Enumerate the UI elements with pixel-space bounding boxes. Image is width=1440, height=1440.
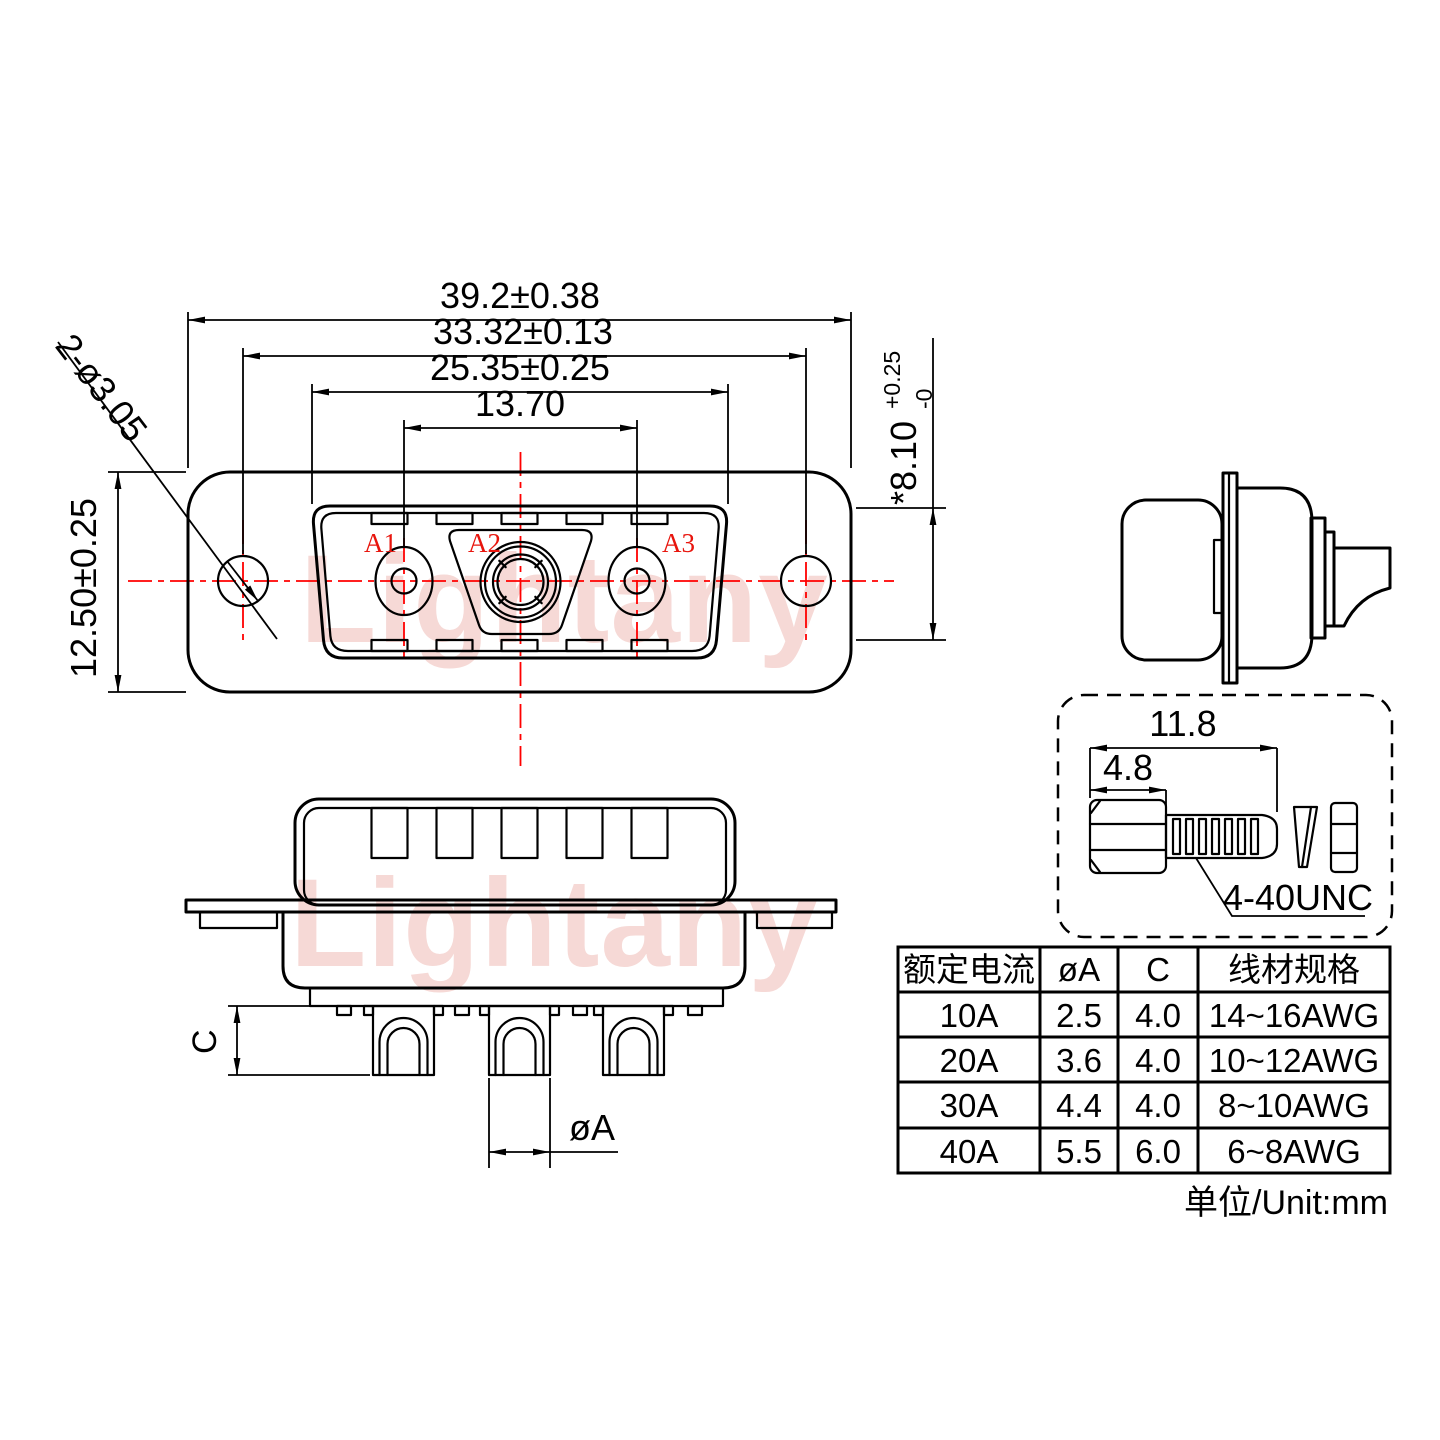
pin-cap-tab (364, 1006, 373, 1015)
dim-shell-height-tol-lower: -0 (911, 389, 937, 409)
contact-label-a3: A3 (662, 528, 695, 558)
pin-body (373, 1006, 434, 1075)
table-cell-current: 40A (940, 1133, 999, 1170)
dim-shell-width-label: 25.35±0.25 (430, 347, 610, 388)
drawing-canvas: Lightany Lightany (0, 0, 1440, 1440)
table-cell-diameter: 2.5 (1056, 997, 1102, 1034)
dim-shell-height-value: *8.10 (883, 421, 924, 505)
locating-nub (337, 1006, 351, 1015)
table-cell-wire: 14~16AWG (1209, 997, 1379, 1034)
locating-nub (688, 1006, 702, 1015)
table-cell-diameter: 4.4 (1056, 1087, 1102, 1124)
screw-head (1090, 800, 1166, 873)
technical-drawing-page: Lightany Lightany (0, 0, 1440, 1440)
wedge-inner-line (1302, 807, 1311, 867)
unit-note: 单位/Unit:mm (1184, 1184, 1388, 1222)
table-cell-wire: 8~10AWG (1218, 1087, 1370, 1124)
table-cell-current: 30A (940, 1087, 999, 1124)
table-header-diameter: øA (1058, 951, 1100, 988)
thread-ridge (1212, 819, 1219, 854)
pin-body (489, 1006, 550, 1075)
thread-ridge (1251, 819, 1258, 854)
thread-ridge (1238, 819, 1245, 854)
cup-wall-inner (618, 1028, 650, 1075)
dim-cup-depth-label: C (186, 1029, 224, 1054)
backshell-slot (437, 808, 473, 858)
dim-contact-span-label: 13.70 (475, 383, 565, 424)
dim-total-width-label: 39.2±0.38 (440, 275, 600, 316)
table-cell-diameter: 5.5 (1056, 1133, 1102, 1170)
shell-tab (567, 513, 603, 524)
pin-cap-tab (434, 1006, 443, 1015)
table-cell-c: 6.0 (1135, 1133, 1181, 1170)
pin-cap-tab (664, 1006, 673, 1015)
table-cell-c: 4.0 (1135, 997, 1181, 1034)
flange-boss-left (200, 912, 277, 928)
dim-shell-height-tol-upper: +0.25 (879, 351, 905, 409)
dim-pin-diameter-label: øA (569, 1107, 615, 1148)
table-cell-diameter: 3.6 (1056, 1042, 1102, 1079)
table-cell-current: 20A (940, 1042, 999, 1079)
contact-label-a1: A1 (364, 528, 397, 558)
thread-spec-label: 4-40UNC (1223, 877, 1373, 918)
screw-detail: 11.8 4.8 4-40UNC (1058, 695, 1392, 937)
front-view: A1 A2 A3 39.2±0.38 33.32±0.13 25.35±0.25… (48, 275, 946, 766)
locating-nub (455, 1006, 469, 1015)
table-header-wire: 线材规格 (1228, 951, 1360, 988)
table-cell-wire: 6~8AWG (1227, 1133, 1361, 1170)
backshell-slot (502, 808, 538, 858)
side-body-outline (1122, 500, 1222, 660)
nut-side-view (1331, 803, 1357, 872)
coax-contact-profile (1334, 548, 1390, 626)
table-row: 20A 3.6 4.0 10~12AWG (940, 1042, 1380, 1079)
thread-ridge (1199, 819, 1206, 854)
dim-shell-height-label: *8.10+0.25-0 (879, 351, 937, 505)
backshell-profile (1237, 488, 1312, 668)
table-row: 30A 4.4 4.0 8~10AWG (940, 1087, 1370, 1124)
shell-tab (372, 513, 408, 524)
solder-cup-pin-a1 (364, 1006, 443, 1075)
dim-height-label: 12.50±0.25 (63, 498, 104, 678)
pin-cap-tab (594, 1006, 603, 1015)
table-cell-c: 4.0 (1135, 1042, 1181, 1079)
table-cell-wire: 10~12AWG (1209, 1042, 1379, 1079)
table-header-c: C (1146, 951, 1170, 988)
dim-head-length-label: 4.8 (1103, 747, 1153, 788)
table-row: 10A 2.5 4.0 14~16AWG (940, 997, 1380, 1034)
backshell-slot (372, 808, 408, 858)
dim-total-length-label: 11.8 (1149, 703, 1216, 744)
spec-table: 额定电流 øA C 线材规格 10A 2.5 4.0 14~16AWG 20A … (898, 947, 1390, 1222)
solder-cup-pin-a3 (594, 1006, 673, 1075)
table-cell-current: 10A (940, 997, 999, 1034)
locating-nub (573, 1006, 587, 1015)
pin-cap-tab (480, 1006, 489, 1015)
cup-wall-inner (504, 1028, 536, 1075)
pin-body (603, 1006, 664, 1075)
shell-tab (437, 513, 473, 524)
thread-ridge (1173, 819, 1180, 854)
side-view (1122, 473, 1390, 683)
pin-cap-tab (550, 1006, 559, 1015)
shell-tab (502, 513, 538, 524)
solder-cup-pin-a2 (480, 1006, 559, 1075)
thread-ridge (1225, 819, 1232, 854)
dim-hole-span-label: 33.32±0.13 (433, 311, 613, 352)
backshell-slot (567, 808, 603, 858)
backshell-slot (632, 808, 668, 858)
screw-shank (1166, 815, 1277, 858)
table-row: 40A 5.5 6.0 6~8AWG (940, 1133, 1361, 1170)
table-header-current: 额定电流 (903, 951, 1035, 988)
cup-wall-inner (388, 1028, 420, 1075)
dim-mount-holes-label: 2-ø3.05 (48, 326, 156, 449)
table-cell-c: 4.0 (1135, 1087, 1181, 1124)
contact-label-a2: A2 (468, 528, 501, 558)
thread-ridge (1186, 819, 1193, 854)
watermark-section: Lightany (290, 854, 819, 993)
